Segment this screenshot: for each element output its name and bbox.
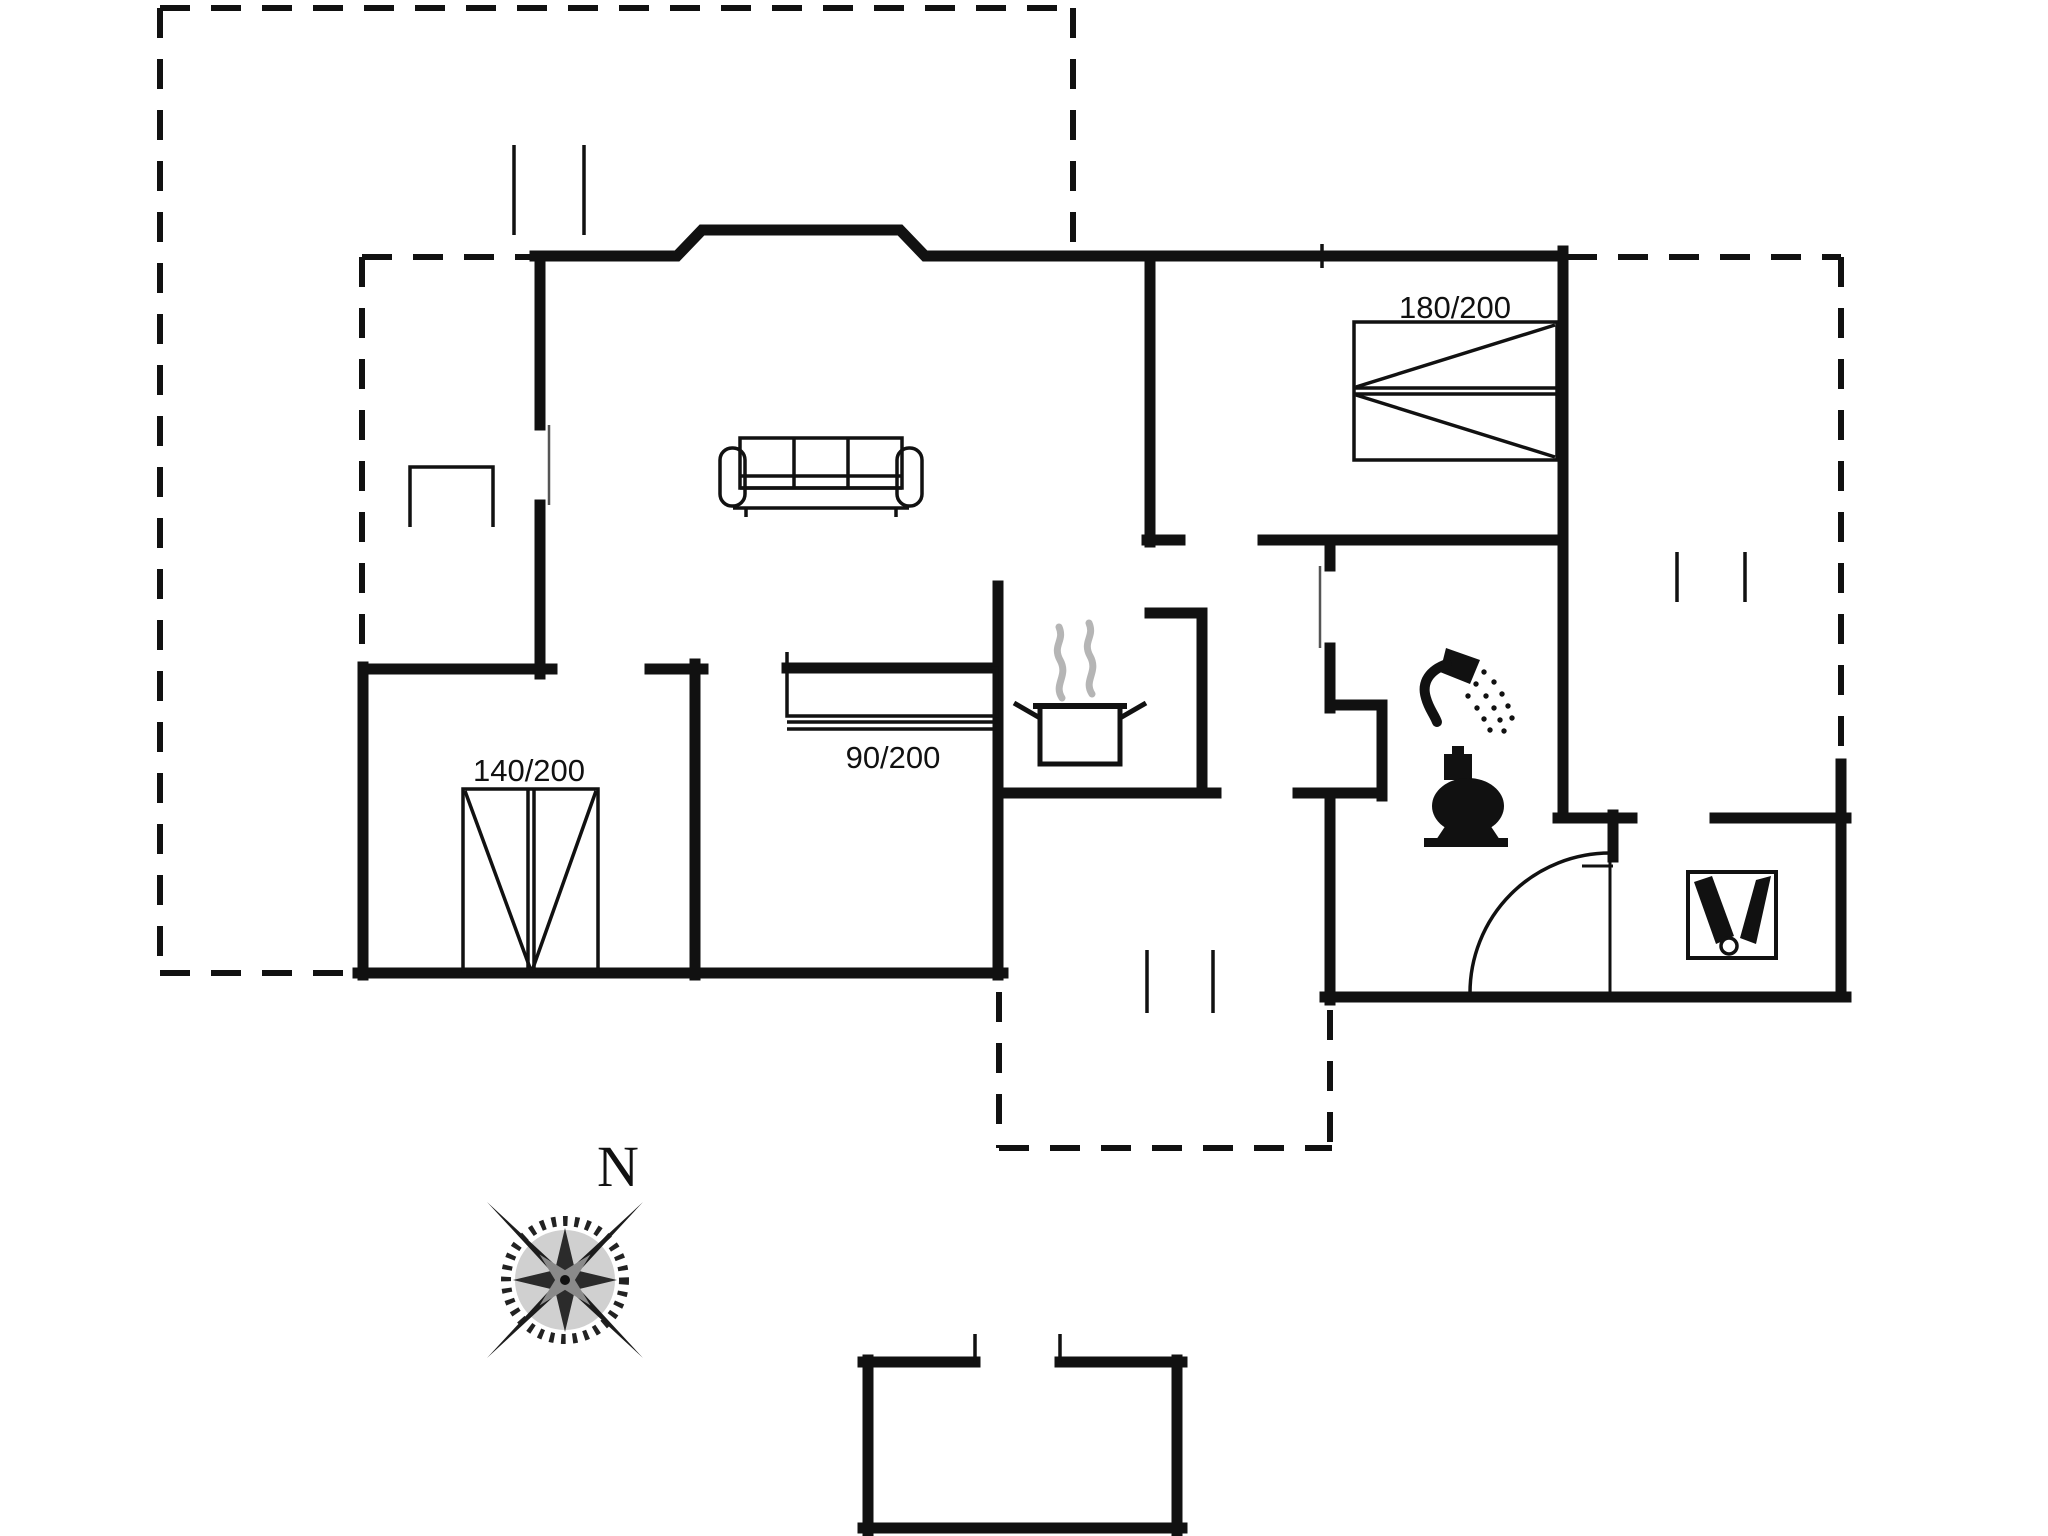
bed-outline xyxy=(463,789,598,971)
stove-pot-icon xyxy=(1014,623,1146,764)
bed-double-label: 140/200 xyxy=(473,753,585,788)
bed-double xyxy=(463,789,598,971)
sink-icon xyxy=(1688,872,1776,958)
annex-building xyxy=(863,1334,1182,1533)
walls xyxy=(358,230,1846,1000)
floor-plan-canvas: 180/200 140/200 90/200 xyxy=(0,0,2048,1536)
floor-plan-drawing: 180/200 140/200 90/200 xyxy=(0,0,2048,1536)
bed-master-label: 180/200 xyxy=(1399,290,1511,325)
steam-icon xyxy=(1057,627,1063,698)
door-swing-icon xyxy=(1470,853,1610,993)
steam-icon xyxy=(1087,623,1093,694)
terrace-bench xyxy=(410,467,493,527)
sofa-seats xyxy=(740,438,902,488)
bed-master xyxy=(1354,322,1557,460)
compass-rose-icon xyxy=(487,1202,643,1358)
bed-single-label: 90/200 xyxy=(846,740,941,775)
north-wall-with-bay xyxy=(535,230,1563,256)
shower-icon xyxy=(1425,648,1515,734)
compass-north-label: N xyxy=(597,1134,639,1199)
sofa-icon xyxy=(720,438,922,517)
bed-outline xyxy=(787,668,997,716)
bed-outline xyxy=(1354,322,1557,460)
toilet-icon xyxy=(1424,746,1508,847)
